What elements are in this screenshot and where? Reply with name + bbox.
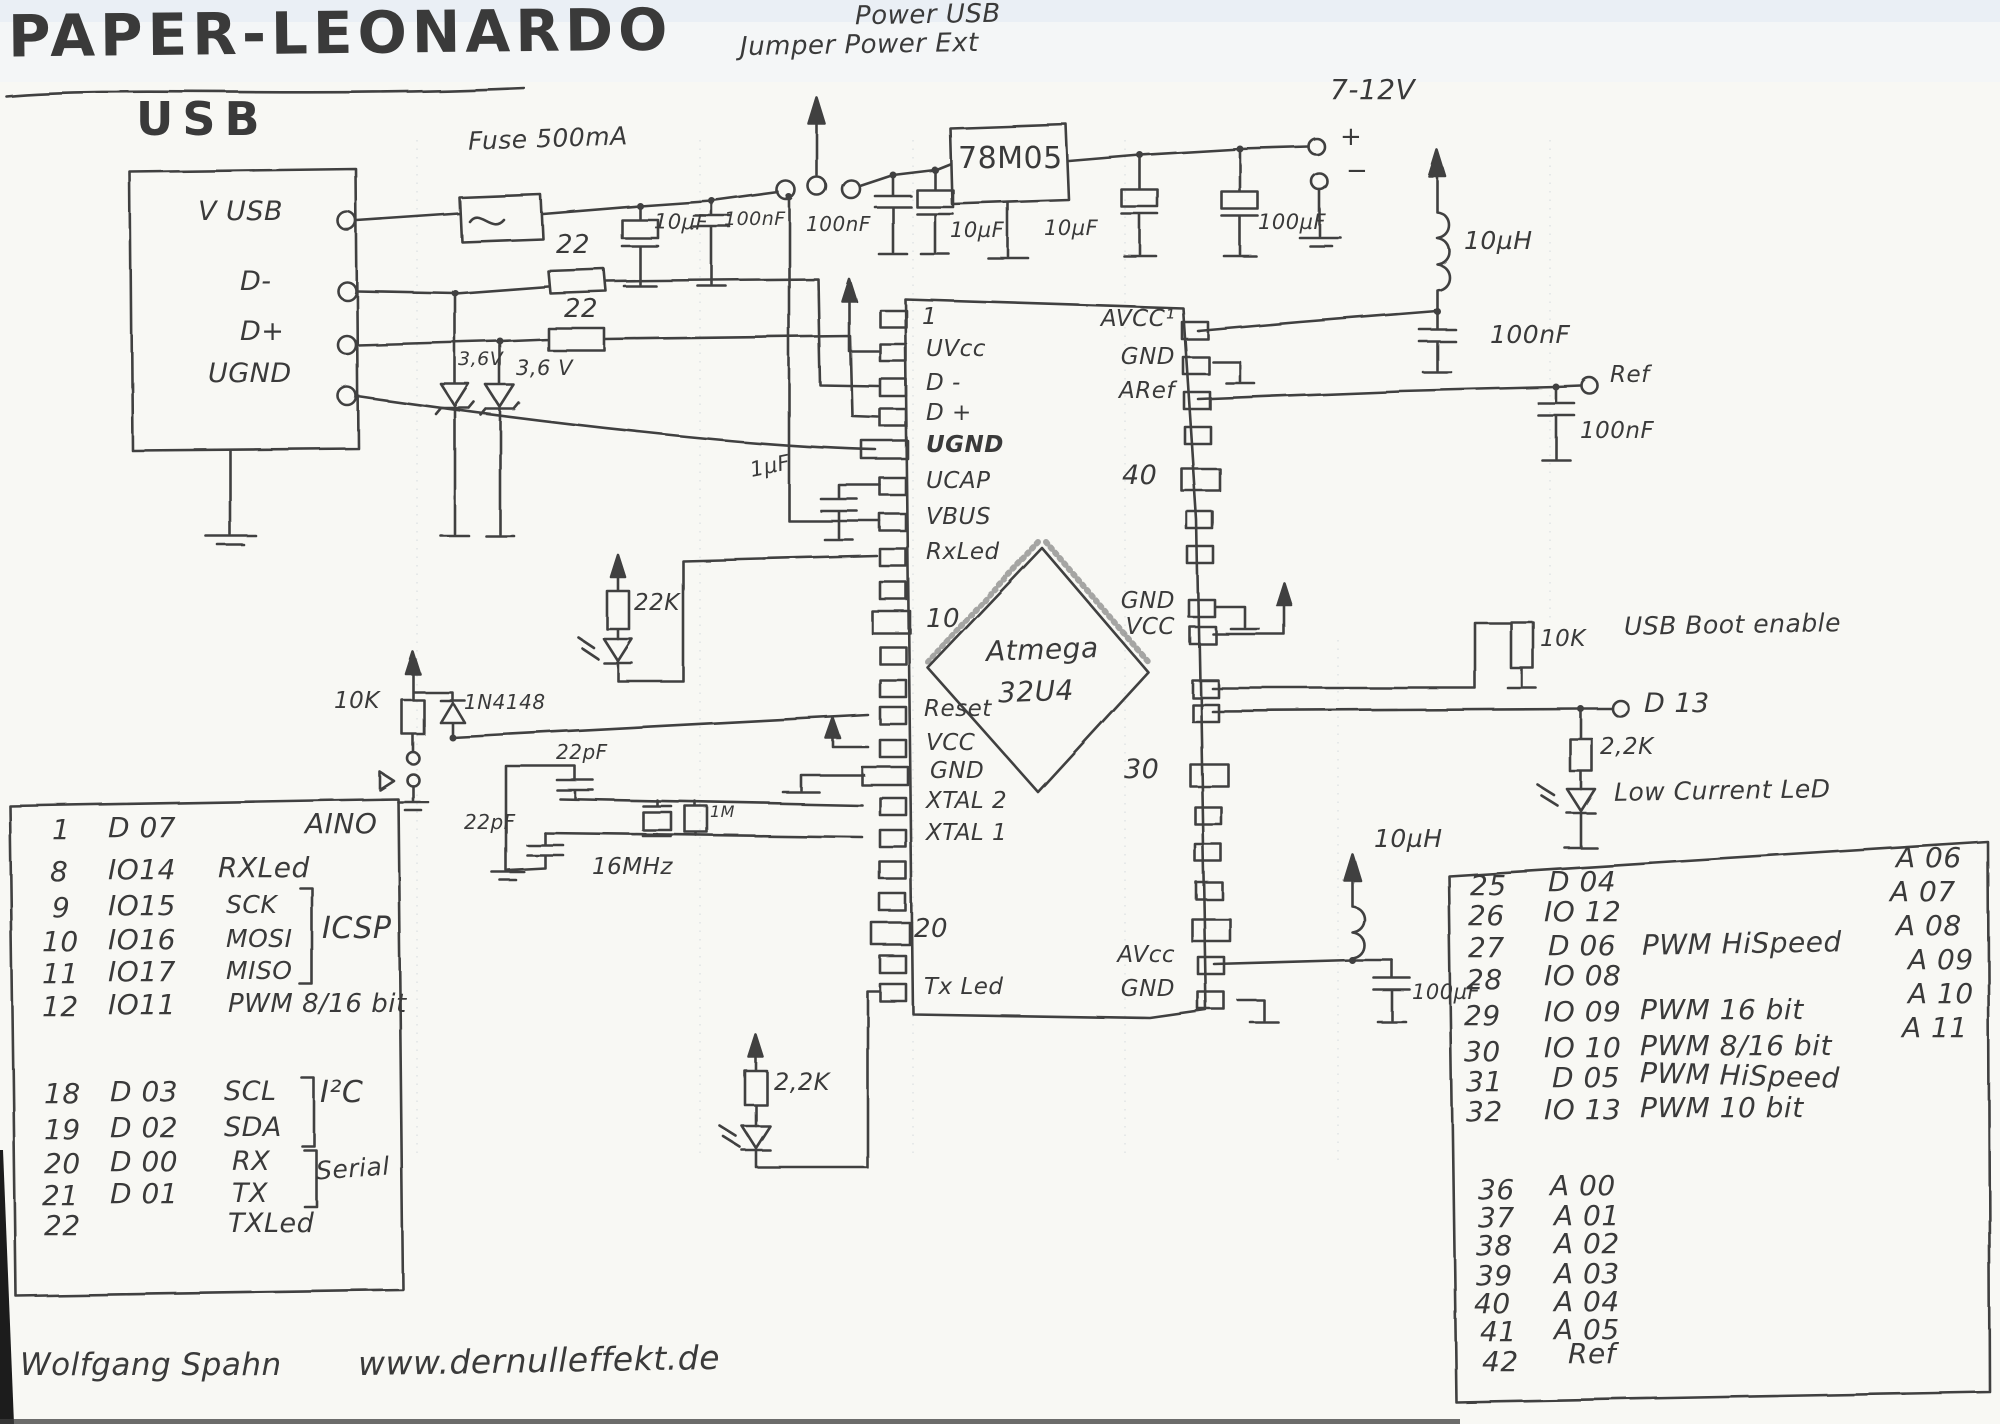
lt-r0-pin: 1 bbox=[52, 816, 70, 844]
jumper-arrowhead bbox=[809, 98, 825, 124]
label-r1m: 1M bbox=[710, 804, 735, 820]
gnd-right-top bbox=[1213, 362, 1254, 383]
chip-pin-dminus: D - bbox=[926, 372, 961, 395]
rt-r0-pin: 25 bbox=[1470, 872, 1507, 900]
label-cap-22pf-bot: 22pF bbox=[464, 812, 516, 832]
lt-r5-io: IO11 bbox=[108, 991, 176, 1019]
rt2-r4-pin: 40 bbox=[1474, 1290, 1511, 1318]
scanned-schematic-page: PAPER-LEONARDO Power USB Jumper Power Ex… bbox=[0, 0, 2000, 1424]
chip-pin-xtal2: XTAL 2 bbox=[926, 790, 1007, 813]
inductor-10uh-top bbox=[1437, 174, 1449, 311]
chip-pin-gnd-r3: GND bbox=[1035, 978, 1175, 1001]
lt-r2-fn: SCK bbox=[226, 892, 277, 917]
rt2-r3-io: A 03 bbox=[1554, 1260, 1620, 1288]
chip-pin-vbus: VBUS bbox=[926, 506, 991, 529]
lt-r5-pin: 12 bbox=[42, 993, 79, 1021]
rt2-r2-io: A 02 bbox=[1554, 1230, 1620, 1258]
label-cap-100uf-1: 100µF bbox=[1258, 212, 1326, 233]
reset-wire bbox=[452, 715, 868, 737]
scan-artifact-bottom bbox=[0, 1419, 1460, 1424]
r10k-boot-symbol bbox=[1212, 622, 1536, 688]
wire-aref bbox=[1198, 386, 1581, 399]
label-ref-terminal: Ref bbox=[1610, 364, 1650, 387]
wire-avcc-bottom bbox=[1214, 960, 1392, 964]
txled-led-triangle bbox=[742, 1126, 770, 1148]
usb-pin-ugnd: UGND bbox=[208, 360, 292, 387]
label-r22-bottom: 22 bbox=[564, 296, 598, 322]
rt-r7-pin: 32 bbox=[1466, 1098, 1503, 1126]
icsp-bracket bbox=[300, 888, 312, 984]
lt-r0-io: D 07 bbox=[108, 814, 176, 842]
label-crystal: 16MHz bbox=[592, 856, 673, 879]
cap-10uf-1-symbol bbox=[622, 206, 658, 286]
label-minus: − bbox=[1346, 158, 1368, 184]
lt-r4-pin: 11 bbox=[42, 960, 79, 988]
lt-r1-fn: RXLed bbox=[218, 854, 310, 882]
rt2-r3-pin: 39 bbox=[1476, 1262, 1513, 1290]
usb-heading: USB bbox=[136, 96, 269, 142]
rt-r0-io: D 04 bbox=[1548, 868, 1616, 896]
paper-guide-lines bbox=[417, 140, 1550, 1160]
lt-r7-io: D 02 bbox=[110, 1114, 178, 1142]
lt-r1-pin: 8 bbox=[50, 858, 68, 886]
label-fuse: Fuse 500mA bbox=[468, 123, 629, 154]
chip-pin-ugnd: UGND bbox=[926, 434, 1004, 457]
label-diode-1n4148: 1N4148 bbox=[464, 692, 546, 712]
ref-terminal-circle bbox=[1582, 378, 1598, 394]
crystal-symbol bbox=[643, 800, 671, 836]
i2c-bracket bbox=[302, 1078, 314, 1146]
lt-r6-fn: SCL bbox=[224, 1078, 277, 1105]
serial-bracket bbox=[304, 1150, 316, 1206]
label-r22k-rx: 22K bbox=[634, 592, 680, 615]
regulator-label: 78M05 bbox=[958, 144, 1062, 174]
rt-a08: A 08 bbox=[1896, 912, 1962, 940]
label-inductor-bottom: 10µH bbox=[1374, 826, 1443, 851]
r1m-symbol bbox=[685, 801, 707, 835]
ugnd-rail bbox=[357, 396, 876, 450]
lt-r2-io: IO15 bbox=[108, 892, 176, 920]
gnd-right-bottom bbox=[1238, 1000, 1278, 1022]
supply-terminals bbox=[1309, 139, 1328, 190]
lt-group-i2c: I²C bbox=[320, 1078, 363, 1108]
led-d13-bar bbox=[1538, 785, 1597, 848]
lt-r8-fn: RX bbox=[232, 1148, 270, 1175]
uvcc-arrowhead bbox=[842, 279, 856, 301]
chip-pin-10: 10 bbox=[926, 606, 960, 632]
cap-22pf-bot-symbol bbox=[492, 833, 563, 880]
label-r22k-tx: 2,2K bbox=[774, 1070, 830, 1094]
label-r22-top: 22 bbox=[556, 232, 590, 258]
label-supply-voltage: 7-12V bbox=[1330, 76, 1415, 104]
lt-group-icsp: ICSP bbox=[322, 914, 392, 944]
zener-left-symbol bbox=[436, 293, 474, 536]
chip-pin-gnd-r1: GND bbox=[1035, 346, 1175, 369]
lt-r7-fn: SDA bbox=[224, 1114, 282, 1141]
chip-pin-40: 40 bbox=[1122, 462, 1157, 489]
rt-r5-io: IO 10 bbox=[1544, 1034, 1621, 1062]
rt2-r6-pin: 42 bbox=[1482, 1348, 1519, 1376]
chip-pin-avcc1: AVCC¹ bbox=[1035, 308, 1175, 331]
dminus-path bbox=[357, 269, 878, 386]
cap-100uf-1-symbol bbox=[1222, 149, 1258, 256]
lt-r3-fn: MOSI bbox=[226, 926, 293, 951]
rt2-ref: Ref bbox=[1568, 1340, 1616, 1368]
chip-pin-txled: Tx Led bbox=[924, 976, 1004, 999]
cap-100nf-3-symbol bbox=[1419, 311, 1455, 372]
chip-pin-aref: ARef bbox=[1035, 380, 1175, 403]
vcc-right-arrowhead bbox=[1277, 583, 1291, 605]
lt-r7-pin: 19 bbox=[44, 1116, 81, 1144]
lt-r5-fn: PWM 8/16 bit bbox=[228, 991, 407, 1017]
rt-r1-io: IO 12 bbox=[1544, 898, 1621, 926]
rt-r6-io: D 05 bbox=[1552, 1064, 1620, 1092]
lt-r6-io: D 03 bbox=[110, 1078, 178, 1106]
rt-r7-io: IO 13 bbox=[1544, 1096, 1621, 1124]
author-signature: Wolfgang Spahn bbox=[20, 1350, 282, 1381]
inductor-top-arrowhead bbox=[1429, 150, 1445, 176]
inductor-10uh-bottom bbox=[1352, 878, 1364, 958]
chip-pin-gnd-r2: GND bbox=[1035, 590, 1175, 613]
website-url: www.dernulleffekt.de bbox=[358, 1341, 720, 1380]
rt2-r0-io: A 00 bbox=[1550, 1172, 1616, 1200]
inductor-bottom-arrowhead bbox=[1344, 854, 1360, 880]
usb-pin-dplus: D+ bbox=[240, 318, 284, 345]
cap-100nf-4-symbol bbox=[1538, 387, 1574, 460]
cap-100nf-2-symbol bbox=[875, 175, 911, 254]
usb-terminal-circles bbox=[338, 212, 356, 405]
lt-r8-io: D 00 bbox=[110, 1148, 178, 1176]
label-low-current-led: Low Current LeD bbox=[1614, 776, 1831, 805]
lt-r4-fn: MISO bbox=[226, 958, 293, 983]
label-cap-22pf-top: 22pF bbox=[556, 742, 608, 762]
cap-10uf-3-symbol bbox=[1122, 155, 1158, 256]
d13-terminal-circle bbox=[1613, 701, 1629, 717]
rt-a07: A 07 bbox=[1890, 878, 1956, 906]
lt-r0-note: AINO bbox=[305, 810, 377, 838]
label-jumper-power-ext: Jumper Power Ext bbox=[740, 30, 979, 60]
rt-r6-pin: 31 bbox=[1466, 1068, 1503, 1096]
label-r22k-d13: 2,2K bbox=[1600, 736, 1654, 759]
label-cap-10uf-1: 10µF bbox=[654, 211, 709, 234]
r22k-d13-symbol bbox=[1570, 709, 1592, 789]
rt-r2-pin: 27 bbox=[1468, 934, 1505, 962]
rt2-r5-pin: 41 bbox=[1480, 1318, 1517, 1346]
rt-r5-pin: 30 bbox=[1464, 1038, 1501, 1066]
lt-r3-io: IO16 bbox=[108, 926, 176, 954]
lt-group-serial: Serial bbox=[315, 1153, 390, 1183]
chip-pin-xtal1: XTAL 1 bbox=[926, 822, 1007, 845]
rt-r2-io: D 06 bbox=[1548, 932, 1616, 960]
rt2-r1-pin: 37 bbox=[1478, 1204, 1515, 1232]
dplus-path bbox=[357, 328, 878, 417]
label-power-usb: Power USB bbox=[855, 1, 1001, 30]
label-zener-right: 3,6 V bbox=[516, 358, 573, 379]
chip-pin-vcc-r: VCC bbox=[1035, 616, 1175, 639]
rt-r3-io: IO 08 bbox=[1544, 962, 1621, 990]
chip-pin-uvcc: UVcc bbox=[926, 338, 986, 361]
cap-10uf-2-symbol bbox=[917, 170, 953, 254]
txled-arrowhead bbox=[749, 1035, 763, 1057]
chip-pin-dplus: D + bbox=[926, 402, 972, 425]
wire-avcc-top bbox=[1198, 311, 1437, 331]
chip-pin-avcc2: AVcc bbox=[1035, 944, 1175, 967]
chip-pin-30: 30 bbox=[1124, 756, 1159, 783]
rt2-r2-pin: 38 bbox=[1476, 1232, 1513, 1260]
lt-r10-fn: TXLed bbox=[228, 1210, 314, 1237]
reset-button bbox=[380, 752, 428, 810]
label-cap-100nf-3: 100nF bbox=[1490, 322, 1570, 347]
chip-name-line2: 32U4 bbox=[998, 677, 1075, 708]
label-cap-10uf-3: 10µF bbox=[1044, 218, 1098, 239]
rt2-r0-pin: 36 bbox=[1478, 1176, 1515, 1204]
label-r10k-reset: 10K bbox=[334, 690, 380, 713]
rt2-r4-io: A 04 bbox=[1554, 1288, 1620, 1316]
chip-pin-20: 20 bbox=[914, 916, 948, 942]
label-cap-100nf-2: 100nF bbox=[806, 214, 871, 234]
rt-r1-pin: 26 bbox=[1468, 902, 1505, 930]
gnd-right-mid bbox=[1216, 607, 1259, 629]
xtal1-line bbox=[545, 833, 862, 837]
wire-regulator-out bbox=[1069, 147, 1309, 161]
label-inductor-top: 10µH bbox=[1464, 228, 1533, 253]
chip-pin-ucap: UCAP bbox=[926, 470, 991, 493]
rt-a11: A 11 bbox=[1902, 1014, 1968, 1042]
zener-right-symbol bbox=[481, 341, 519, 536]
gnd-left bbox=[783, 775, 864, 792]
rt2-r1-io: A 01 bbox=[1554, 1202, 1620, 1230]
vbus-riser bbox=[789, 196, 880, 521]
usb-gnd-stub bbox=[206, 450, 256, 545]
chip-pin-1: 1 bbox=[922, 306, 937, 329]
label-r10k-boot: 10K bbox=[1540, 628, 1586, 651]
chip-pin-vcc: VCC bbox=[926, 732, 975, 755]
rt-r4-pin: 29 bbox=[1464, 1002, 1501, 1030]
rt-a06: A 06 bbox=[1896, 844, 1962, 872]
label-zener-left: 3,6V bbox=[458, 350, 503, 369]
rt-r2-fn: PWM HiSpeed bbox=[1642, 928, 1842, 959]
label-usb-boot-enable: USB Boot enable bbox=[1624, 610, 1841, 639]
ink-layer bbox=[6, 88, 1990, 1402]
rt-a10: A 10 bbox=[1908, 980, 1974, 1008]
usb-pin-dminus: D- bbox=[240, 268, 272, 295]
lt-r3-pin: 10 bbox=[42, 928, 79, 956]
lt-r9-pin: 21 bbox=[42, 1182, 79, 1210]
lt-r6-pin: 18 bbox=[44, 1080, 81, 1108]
rt-a09: A 09 bbox=[1908, 946, 1974, 974]
rt-r4-io: IO 09 bbox=[1544, 998, 1621, 1026]
label-cap-100nf-1: 100nF bbox=[724, 210, 786, 229]
label-cap-100nf-4: 100nF bbox=[1580, 420, 1654, 443]
led-d13-triangle bbox=[1567, 789, 1595, 811]
d13-wire bbox=[1212, 709, 1612, 711]
rxled-led-triangle bbox=[604, 639, 632, 661]
rt-r5-fn: PWM 8/16 bit bbox=[1640, 1032, 1832, 1060]
rxled-arrowhead bbox=[611, 555, 625, 577]
lt-r9-io: D 01 bbox=[110, 1180, 178, 1208]
label-cap-10uf-2: 10µF bbox=[950, 220, 1004, 241]
rt-r4-fn: PWM 16 bit bbox=[1640, 996, 1804, 1024]
rt-r3-pin: 28 bbox=[1466, 966, 1503, 994]
chip-pin-reset: Reset bbox=[924, 698, 992, 721]
reset-arrowhead bbox=[406, 652, 420, 674]
label-plus: + bbox=[1340, 124, 1362, 150]
rt-r7-fn: PWM 10 bit bbox=[1640, 1094, 1804, 1122]
lt-r2-pin: 9 bbox=[52, 894, 70, 922]
lt-r10-pin: 22 bbox=[44, 1212, 81, 1240]
lt-r8-pin: 20 bbox=[44, 1150, 81, 1178]
page-title: PAPER-LEONARDO bbox=[8, 1, 673, 66]
cap-100uf-2-symbol bbox=[1374, 960, 1410, 1022]
rt-r6-fn: PWM HiSpeed bbox=[1640, 1059, 1840, 1093]
uvcc-arrow bbox=[849, 299, 878, 351]
lt-r9-fn: TX bbox=[232, 1180, 268, 1207]
chip-pin-rxled: RxLed bbox=[926, 541, 1000, 564]
cap-1uf-symbol bbox=[821, 485, 880, 540]
label-d13: D 13 bbox=[1644, 690, 1710, 717]
lt-r1-io: IO14 bbox=[108, 856, 176, 884]
usb-pin-vusb: V USB bbox=[198, 198, 283, 225]
lt-r4-io: IO17 bbox=[108, 958, 176, 986]
vcc-left-arrowhead bbox=[826, 718, 840, 738]
chip-pin-gnd: GND bbox=[930, 760, 984, 783]
